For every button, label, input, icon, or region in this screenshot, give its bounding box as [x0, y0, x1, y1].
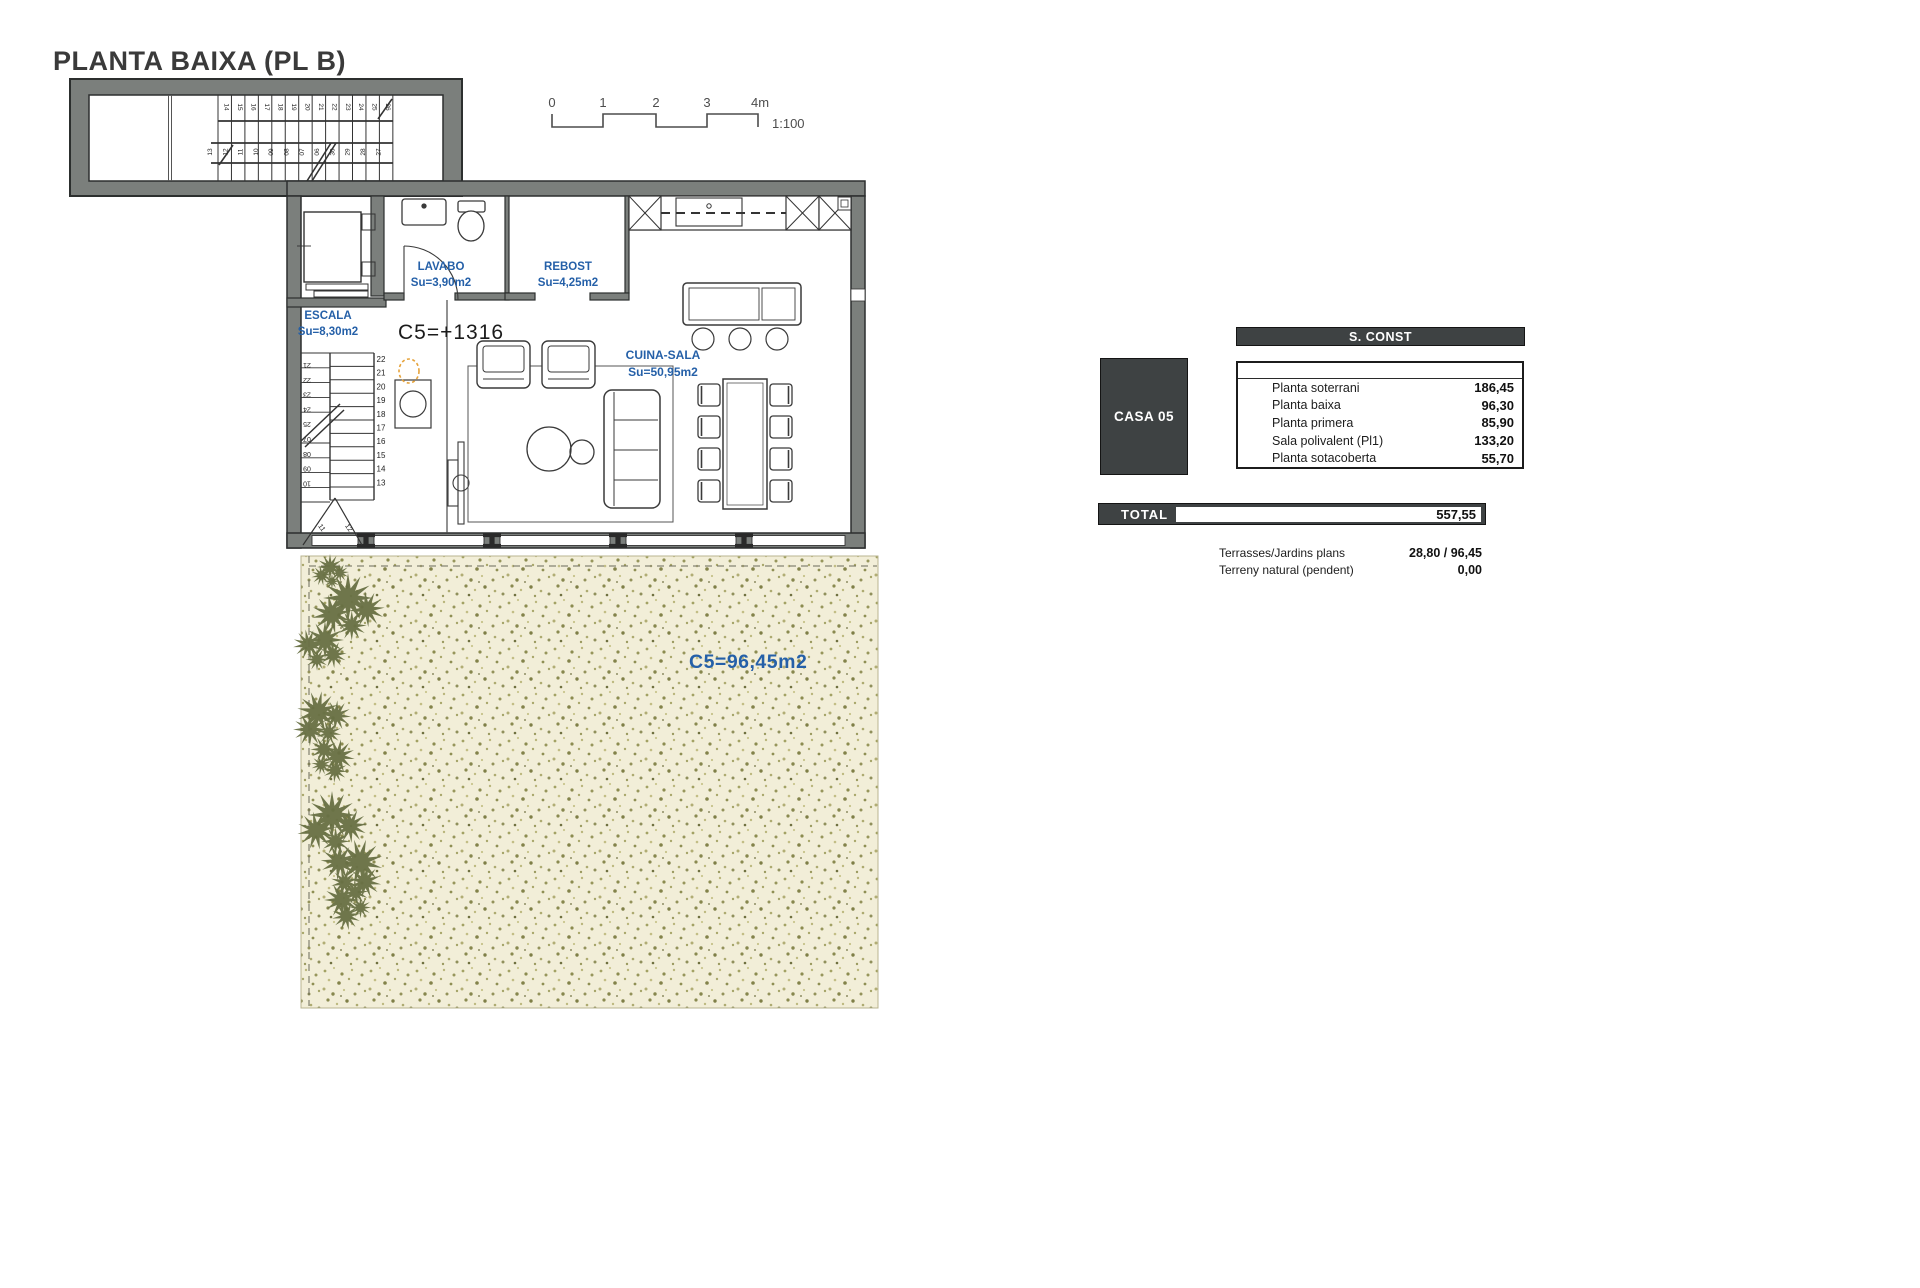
kitchen-counter	[629, 196, 851, 230]
svg-text:08: 08	[303, 450, 311, 457]
room-area-cuina-sala: Su=50,95m2	[628, 365, 698, 379]
svg-text:09: 09	[268, 148, 275, 156]
stair-wing: 14151617181920212223242526 1312111009080…	[70, 79, 462, 196]
scale-tick-1: 1	[599, 95, 606, 110]
escala-numbers-left: 212223242507080910	[303, 361, 311, 486]
svg-text:22: 22	[330, 103, 337, 111]
extra-row: Terrasses/Jardins plans 28,80 / 96,45	[1219, 544, 1482, 561]
room-area-rebost: Su=4,25m2	[538, 277, 598, 289]
row-value: 55,70	[1481, 451, 1514, 466]
dining-set	[698, 379, 792, 509]
svg-text:06: 06	[314, 148, 321, 156]
elevator	[297, 212, 375, 297]
sofa	[604, 390, 660, 508]
room-name-cuina-sala: CUINA-SALA	[626, 348, 701, 362]
svg-text:21: 21	[317, 103, 324, 111]
svg-text:23: 23	[344, 103, 351, 111]
floor-plan-drawing: 14151617181920212223242526 1312111009080…	[0, 0, 1920, 1288]
svg-text:21: 21	[377, 369, 386, 378]
svg-text:29: 29	[345, 148, 352, 156]
svg-text:12: 12	[222, 148, 229, 156]
scale-tick-0: 0	[548, 95, 555, 110]
svg-text:10: 10	[253, 148, 260, 156]
table-row: Sala polivalent (Pl1) 133,20	[1238, 432, 1522, 450]
scale-ratio-label: 1:100	[772, 116, 805, 131]
extra-label: Terrasses/Jardins plans	[1219, 546, 1409, 560]
row-label: Planta soterrani	[1272, 381, 1474, 395]
garden	[301, 556, 878, 1008]
casa-label-box: CASA 05	[1100, 358, 1188, 475]
svg-text:20: 20	[303, 103, 310, 111]
svg-text:15: 15	[377, 451, 386, 460]
garden-area-label: C5=96,45m2	[689, 651, 807, 673]
svg-text:19: 19	[290, 103, 297, 111]
surface-table: Planta soterrani 186,45 Planta baixa 96,…	[1236, 361, 1524, 469]
svg-text:21: 21	[303, 361, 311, 368]
svg-text:10: 10	[303, 479, 311, 486]
svg-text:23: 23	[303, 391, 311, 398]
scale-tick-2: 2	[652, 95, 659, 110]
scale-tick-3: 3	[703, 95, 710, 110]
svg-text:28: 28	[360, 148, 367, 156]
svg-text:14: 14	[223, 103, 230, 111]
escala-stair	[301, 353, 374, 545]
svg-text:11: 11	[316, 523, 326, 533]
svg-text:24: 24	[303, 405, 311, 412]
room-name-rebost: REBOST	[544, 261, 592, 273]
extra-label: Terreny natural (pendent)	[1219, 563, 1458, 577]
table-row: Planta sotacoberta 55,70	[1238, 449, 1522, 467]
armchair	[542, 341, 595, 388]
table-row: Planta soterrani 186,45	[1238, 379, 1522, 397]
radiator	[448, 442, 469, 524]
svg-text:17: 17	[263, 103, 270, 111]
row-label: Planta sotacoberta	[1272, 451, 1481, 465]
extra-row: Terreny natural (pendent) 0,00	[1219, 561, 1482, 578]
svg-text:12: 12	[343, 523, 353, 533]
svg-text:09: 09	[303, 465, 311, 472]
row-value: 85,90	[1481, 415, 1514, 430]
extra-surfaces: Terrasses/Jardins plans 28,80 / 96,45 Te…	[1219, 544, 1482, 578]
extra-value: 0,00	[1458, 563, 1482, 577]
coffee-tables	[527, 427, 594, 471]
svg-text:22: 22	[303, 376, 311, 383]
escala-numbers-right: 22212019181716151413	[377, 355, 386, 487]
total-value: 557,55	[1436, 507, 1476, 522]
hall-fixture	[395, 359, 431, 428]
svg-text:18: 18	[377, 410, 386, 419]
total-label: TOTAL	[1121, 507, 1168, 522]
row-label: Planta primera	[1272, 416, 1481, 430]
svg-text:26: 26	[384, 103, 391, 111]
toilet	[458, 201, 485, 241]
room-area-escala: Su=8,30m2	[298, 326, 358, 338]
row-label: Planta baixa	[1272, 398, 1481, 412]
scale-tick-4: 4m	[751, 95, 769, 110]
svg-text:14: 14	[377, 465, 386, 474]
svg-text:08: 08	[284, 148, 291, 156]
svg-text:19: 19	[377, 396, 386, 405]
row-value: 133,20	[1474, 433, 1514, 448]
surface-table-header-label: S. CONST	[1349, 330, 1412, 344]
lavabo-sink	[402, 199, 446, 225]
svg-text:27: 27	[375, 148, 382, 156]
table-row: Planta primera 85,90	[1238, 414, 1522, 432]
row-value: 186,45	[1474, 380, 1514, 395]
svg-text:13: 13	[377, 478, 386, 487]
surface-table-header: S. CONST	[1236, 327, 1525, 346]
room-area-lavabo: Su=3,90m2	[411, 277, 471, 289]
svg-text:22: 22	[377, 355, 386, 364]
room-name-lavabo: LAVABO	[418, 261, 465, 273]
kitchen-island	[683, 283, 801, 350]
escala-winder-numbers: 1112	[316, 523, 353, 533]
svg-text:25: 25	[303, 420, 311, 427]
row-value: 96,30	[1481, 398, 1514, 413]
svg-text:16: 16	[377, 437, 386, 446]
extra-value: 28,80 / 96,45	[1409, 546, 1482, 560]
svg-text:24: 24	[357, 103, 364, 111]
row-label: Sala polivalent (Pl1)	[1272, 434, 1474, 448]
lavabo-door	[404, 246, 458, 300]
level-mark-label: C5=+1316	[398, 321, 504, 344]
svg-text:17: 17	[377, 424, 386, 433]
svg-text:13: 13	[207, 148, 214, 156]
total-bar: TOTAL 557,55	[1098, 503, 1486, 525]
surface-table-head-strip	[1238, 363, 1522, 379]
svg-text:20: 20	[377, 382, 386, 391]
svg-text:07: 07	[299, 148, 306, 156]
armchair	[477, 341, 530, 388]
svg-text:18: 18	[277, 103, 284, 111]
svg-text:15: 15	[236, 103, 243, 111]
room-name-escala: ESCALA	[304, 310, 351, 322]
svg-text:07: 07	[303, 435, 311, 442]
casa-label: CASA 05	[1114, 409, 1174, 424]
svg-text:16: 16	[250, 103, 257, 111]
svg-text:11: 11	[238, 148, 245, 155]
total-value-box: 557,55	[1176, 507, 1481, 522]
table-row: Planta baixa 96,30	[1238, 397, 1522, 415]
svg-text:25: 25	[371, 103, 378, 111]
scale-bar: 0 1 2 3 4m 1:100	[548, 95, 804, 131]
svg-text:30: 30	[329, 148, 336, 156]
